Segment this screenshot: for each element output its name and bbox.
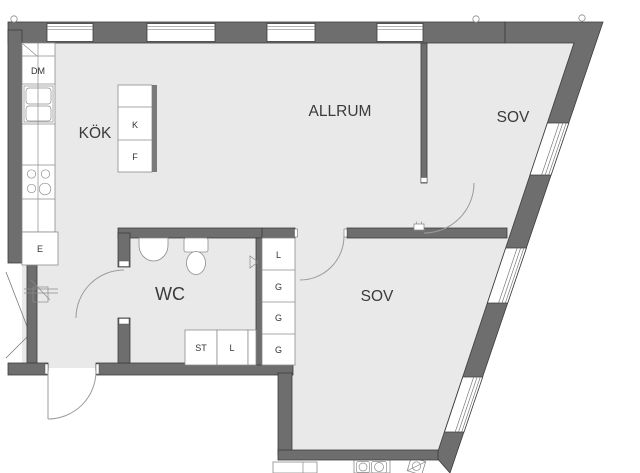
- label-freezer: F: [132, 152, 138, 162]
- island-back-panel: [152, 85, 157, 172]
- floor-plan-svg: KÖK ALLRUM SOV SOV WC DM K F E ST L L G …: [0, 0, 640, 473]
- hall-divider-wall-west: [262, 228, 295, 238]
- vent-marker-right: [579, 15, 585, 21]
- label-electrical-closet: E: [37, 244, 43, 254]
- label-wardrobe-2: G: [275, 313, 282, 323]
- entry-door-arc: [48, 371, 96, 419]
- label-wardrobe-1: G: [275, 282, 282, 292]
- label-linen-closet-hall: L: [276, 250, 281, 260]
- room-label-bedroom-upper: SOV: [497, 109, 530, 126]
- hall-left-wall: [27, 262, 37, 368]
- label-cleaning-closet: ST: [195, 343, 207, 353]
- vent-marker-center: [473, 16, 479, 22]
- wc-east-wall: [256, 238, 262, 365]
- bottom-wall-left: [8, 363, 48, 375]
- label-linen-closet-wc: L: [229, 343, 234, 353]
- apartment-floor: [22, 43, 577, 455]
- window-3: [267, 24, 315, 42]
- wc-west-wall-lower-stub: [118, 318, 130, 363]
- room-label-wc: WC: [155, 284, 185, 304]
- wc-north-wall: [118, 228, 262, 238]
- left-exterior-wall: [8, 30, 22, 263]
- room-label-bedroom-lower: SOV: [361, 288, 394, 305]
- room-label-kitchen: KÖK: [79, 124, 112, 142]
- label-fridge: K: [132, 120, 138, 130]
- window-2: [147, 24, 215, 42]
- label-dishwasher: DM: [31, 66, 45, 76]
- wc-narrow-cabinet: [248, 330, 256, 365]
- window-1: [47, 24, 93, 42]
- window-4: [377, 24, 423, 42]
- living-bedroom-divider-wall: [421, 43, 427, 183]
- floor-plan-page: KÖK ALLRUM SOV SOV WC DM K F E ST L L G …: [0, 0, 640, 473]
- bedroom-lower-west-wall: [278, 373, 292, 455]
- label-wardrobe-3: G: [275, 345, 282, 355]
- bedroom-lower-south-wall: [278, 450, 438, 460]
- vent-marker-left: [11, 16, 17, 22]
- room-label-living: ALLRUM: [309, 103, 372, 120]
